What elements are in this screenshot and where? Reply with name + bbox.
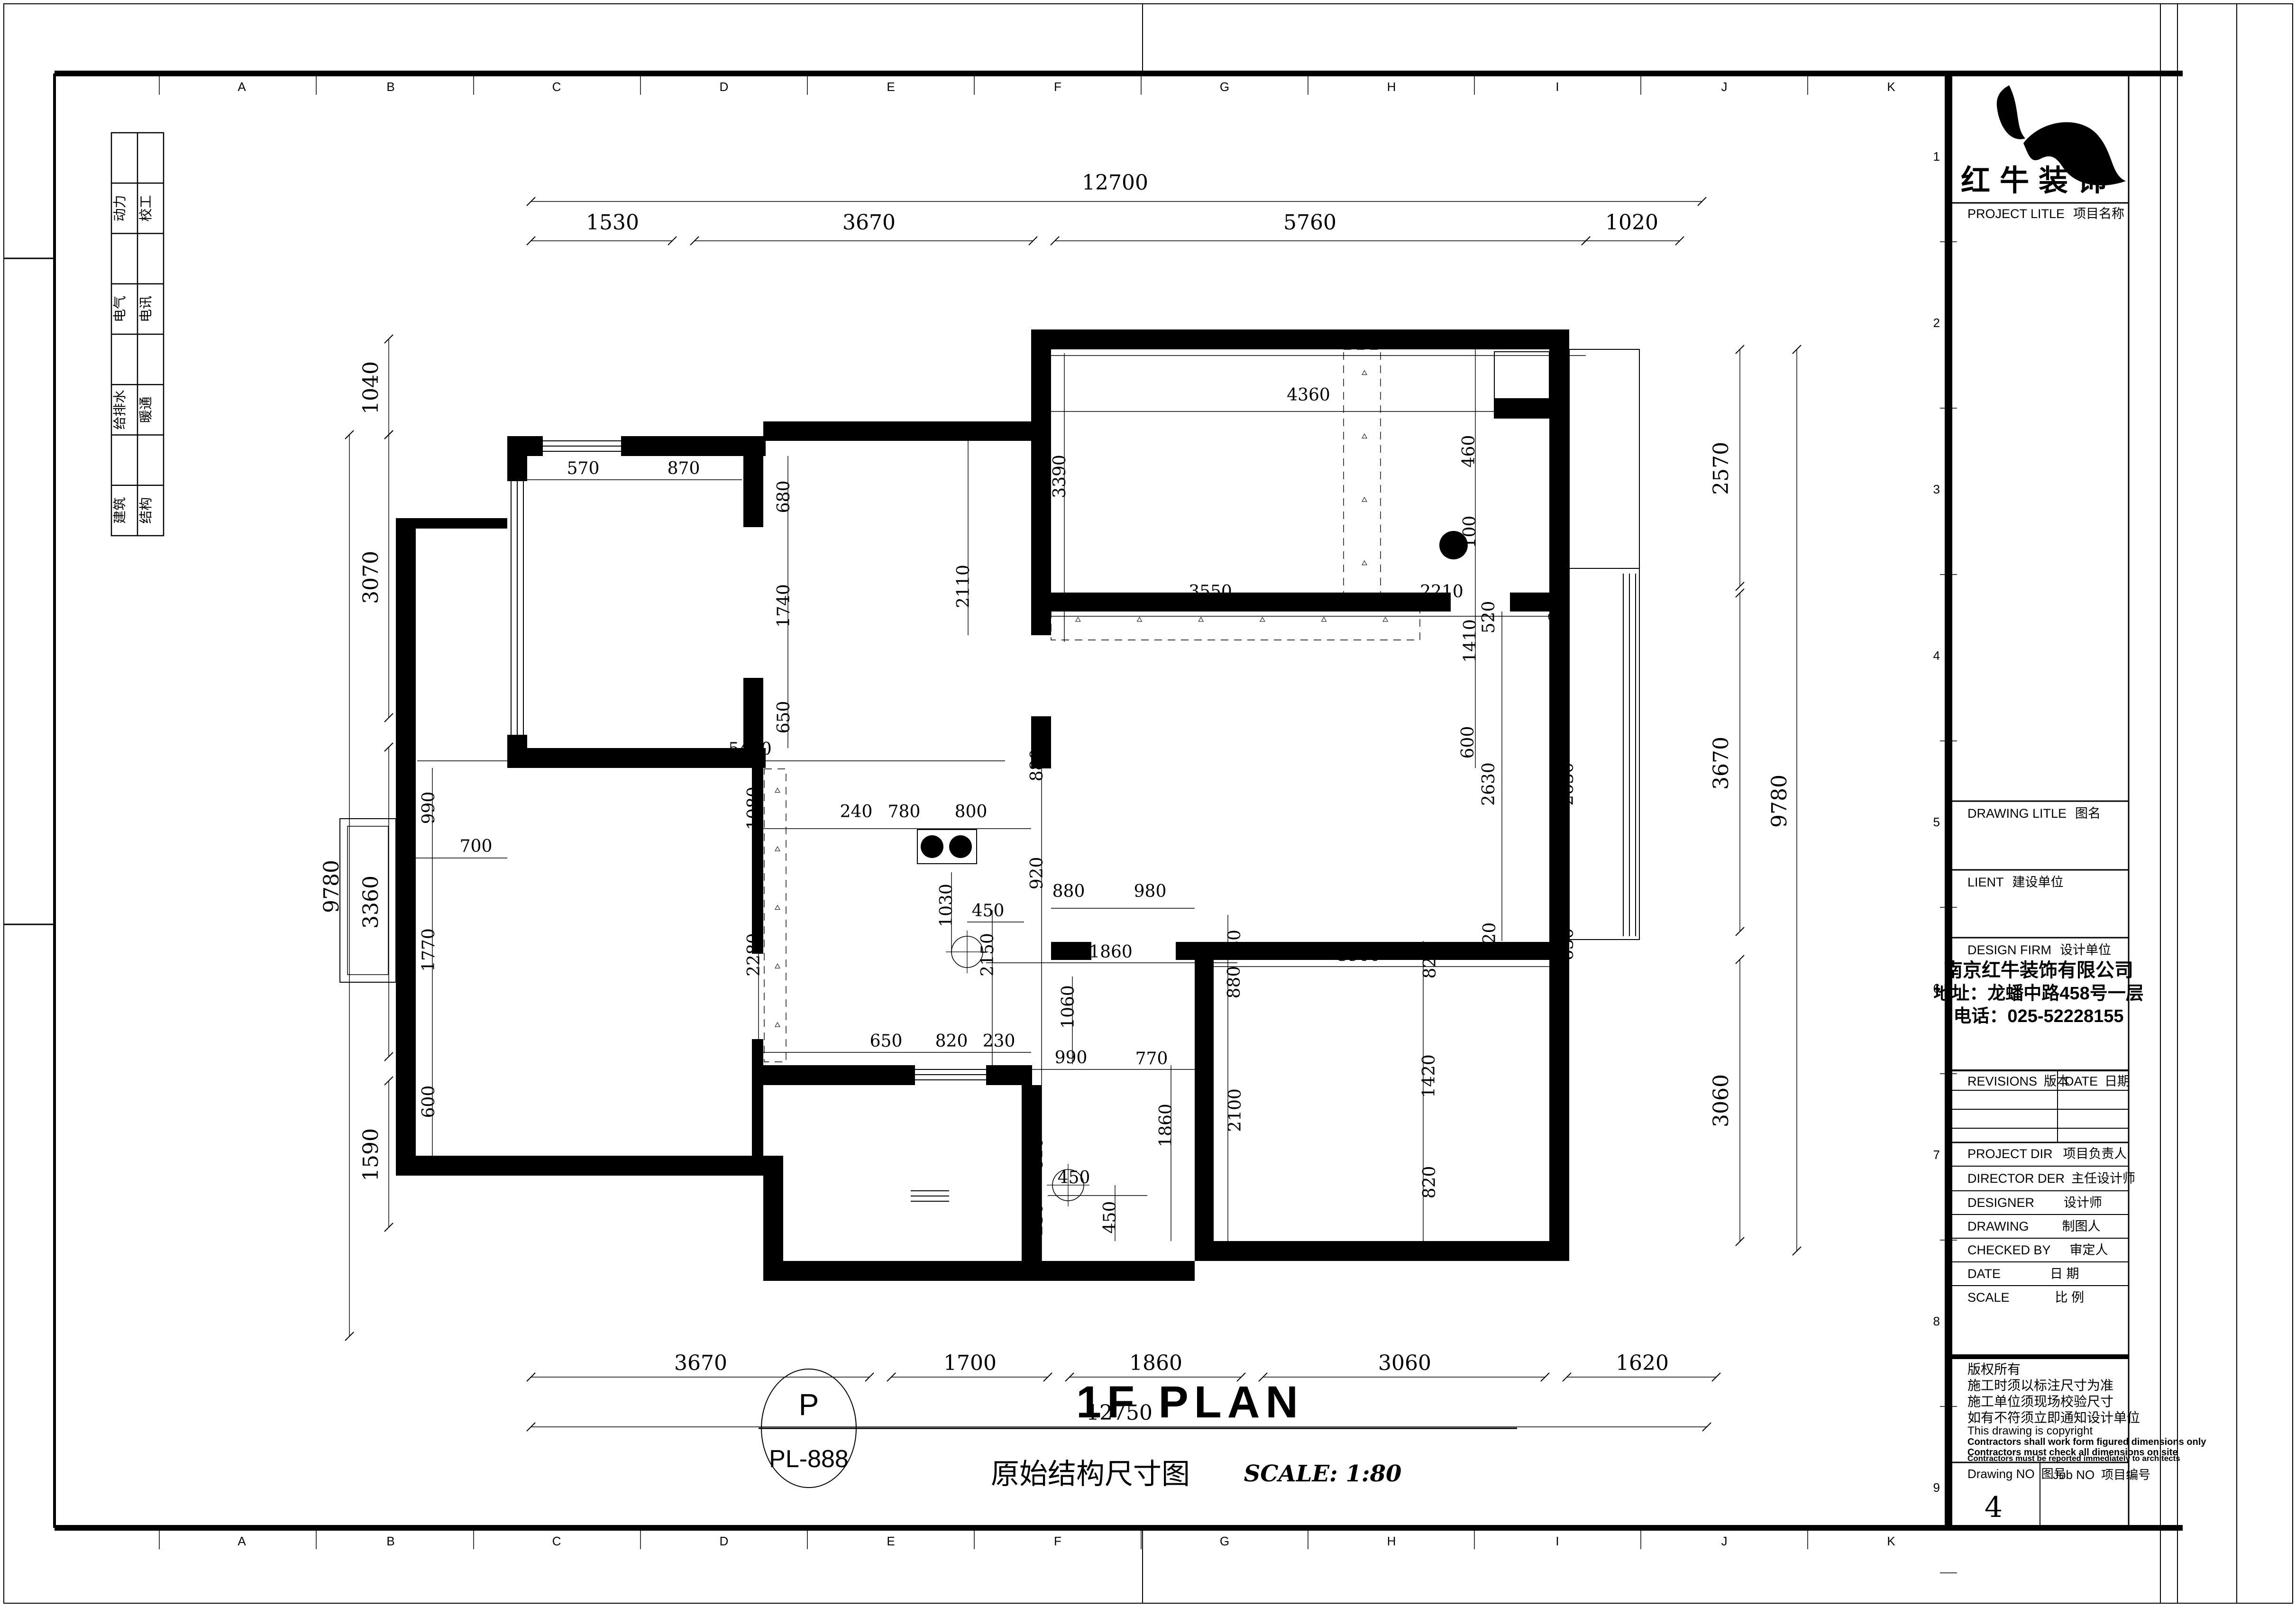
dimension-text: 2210 [1420, 582, 1464, 602]
title-block: 红牛装饰 PROJECT LITLE项目名称 DRAWING LITLE图名 L… [1933, 85, 2206, 1528]
dimension-text: 240 [840, 802, 873, 822]
copyright-notes: 版权所有 施工时须以标注尺寸为准 施工单位须现场校验尺寸 如有不符须立即通知设计… [1967, 1362, 2206, 1463]
dimension-text: 1590 [359, 1128, 383, 1181]
dimension-text: 570 [567, 459, 600, 478]
column-dot [1439, 531, 1468, 559]
grid-letter-top: B [386, 80, 394, 94]
discipline-cell: 动力 [112, 195, 127, 221]
dimension-text: 90 [1061, 332, 1083, 352]
dimension-text: 600 [419, 1086, 439, 1118]
grid-letter-top: K [1887, 80, 1895, 94]
dimension-text: 2100 [1226, 1088, 1245, 1132]
dimension-text: 1700 [943, 1351, 997, 1375]
dimension-text: 9780 [1767, 775, 1792, 828]
wall [763, 1261, 1195, 1281]
hatch-strip [764, 769, 786, 1062]
grid-letter-top: G [1220, 80, 1229, 94]
column-dot [949, 835, 972, 858]
discipline-cell: 结构 [138, 497, 153, 524]
wall [743, 678, 763, 748]
grid-letter-bottom: A [238, 1534, 246, 1548]
grid-row-number: 2 [1933, 316, 1940, 330]
discipline-cell: 给排水 [112, 390, 127, 429]
dimension-text: 810 [1027, 1138, 1047, 1170]
dimension-text: 820 [1420, 946, 1440, 979]
dimension-text: 3070 [359, 551, 383, 604]
plan-title-block: P PL-888 1F PLAN 原始结构尺寸图 SCALE: 1:80 [759, 1369, 1517, 1490]
dimension-text: 780 [888, 802, 921, 822]
dimension-text: 800 [955, 802, 988, 822]
dimension-text: 1080 [744, 786, 764, 830]
dimension-text: 950 [1092, 332, 1125, 352]
dimension-text: 450 [1058, 1168, 1090, 1187]
discipline-cell: 建筑 [112, 497, 127, 524]
section-date-label: DATE日 期 [1967, 1267, 2079, 1281]
dimension-text: 460 [1459, 435, 1479, 468]
dimension-text: 1860 [1089, 942, 1133, 962]
drawing-number: 4 [1985, 1491, 2003, 1524]
wall [763, 1065, 915, 1085]
dimension-text: 3670 [842, 210, 896, 235]
wall [1510, 593, 1549, 612]
grid-letter-bottom: H [1387, 1534, 1396, 1548]
dimension-text: 3900 [1337, 946, 1381, 965]
company-brand: 红牛装饰 [1961, 164, 2116, 197]
dimension-text: 12700 [1082, 171, 1148, 195]
dimension-text: 2630 [1558, 762, 1577, 806]
grid-row-number: 3 [1933, 482, 1940, 496]
outline [1569, 349, 1639, 568]
dimension-text: 650 [870, 1032, 903, 1051]
wall [507, 436, 527, 481]
dimension-text: 880 [1225, 966, 1244, 999]
dimension-text: 630 [1558, 928, 1577, 961]
dimension-text: 880 [1052, 882, 1085, 901]
firm-phone: 电话：025-52228155 [1953, 1006, 2123, 1026]
column-dot [921, 835, 943, 858]
discipline-cell: 电气 [112, 296, 127, 322]
dimension-text: 3670 [674, 1351, 727, 1375]
dimension-text: 1860 [1156, 1104, 1176, 1147]
discipline-cell: 电讯 [138, 296, 153, 322]
dimension-text: 680 [774, 481, 794, 513]
grid-letter-top: C [552, 80, 561, 94]
grid-letter-top: H [1387, 80, 1396, 94]
dimension-text: 3360 [359, 876, 383, 929]
section-scale-label: SCALE比 例 [1967, 1290, 2084, 1305]
grid-reference-labels: AABBCCDDEEFFGGHHIIJJKK123456789 [159, 76, 1957, 1573]
grid-letter-bottom: B [386, 1534, 394, 1548]
section-designfirm-label: DESIGN FIRM设计单位 [1967, 943, 2111, 957]
dimension-text: 360 [1498, 403, 1531, 422]
dimension-text: 9780 [320, 860, 344, 913]
section-datecol-label: DATE日期 [2065, 1074, 2130, 1088]
grid-row-number: 9 [1933, 1480, 1940, 1495]
wall [1195, 960, 1214, 1241]
dimension-text: 3670 [1709, 737, 1733, 790]
dimension-text: 3390 [1050, 455, 1070, 498]
section-director-label: DIRECTOR DER主任设计师 [1967, 1171, 2135, 1186]
grid-letter-bottom: C [552, 1534, 561, 1548]
firm-name: 南京红牛装饰有限公司 [1944, 960, 2133, 981]
wall [1051, 942, 1091, 960]
dimension-text: 2110 [954, 565, 973, 608]
jobno-label: Job NO项目编号 [2053, 1468, 2150, 1482]
grid-letter-bottom: D [720, 1534, 729, 1548]
bubble-letter: P [799, 1388, 819, 1422]
grid-letter-top: E [887, 80, 895, 94]
wall [1031, 441, 1051, 635]
section-project-label: PROJECT LITLE项目名称 [1967, 207, 2124, 221]
wall [752, 1039, 763, 1156]
grid-letter-bottom: K [1887, 1534, 1895, 1548]
dimension-text: 1030 [937, 884, 956, 927]
dimension-text: 230 [1027, 1204, 1047, 1236]
section-designer-label: DESIGNER设计师 [1967, 1196, 2102, 1210]
dimension-text: 4360 [1287, 385, 1330, 405]
svg-text:施工单位须现场校验尺寸: 施工单位须现场校验尺寸 [1967, 1394, 2113, 1409]
dimension-text: 700 [460, 837, 493, 856]
plan-scale: SCALE: 1:80 [1244, 1461, 1402, 1487]
dimension-text: 990 [1055, 1048, 1088, 1068]
discipline-cell: 校工 [138, 195, 153, 221]
grid-letter-top: D [720, 80, 729, 94]
grid-letter-bottom: F [1054, 1534, 1061, 1548]
grid-letter-bottom: G [1220, 1534, 1229, 1548]
dimension-text: 80 [1225, 930, 1244, 951]
dimension-text: 990 [419, 792, 439, 824]
dimension-text: 3550 [1189, 582, 1232, 602]
bubble-code: PL-888 [769, 1445, 849, 1473]
dimension-text: 1410 [1461, 619, 1480, 663]
dimension-text: 3060 [1378, 1351, 1431, 1375]
dimension-text: 2150 [978, 933, 997, 977]
dimension-text: 1740 [774, 584, 794, 628]
grid-letter-top: J [1721, 80, 1728, 94]
dimension-text: 1060 [1059, 985, 1078, 1029]
grid-letter-bottom: E [887, 1534, 895, 1548]
dimension-text: 1040 [359, 361, 383, 414]
dimension-text: 1620 [1616, 1351, 1669, 1375]
svg-text:Contractors must be reported i: Contractors must be reported immediately… [1967, 1454, 2180, 1463]
svg-text:如有不符须立即通知设计单位: 如有不符须立即通知设计单位 [1967, 1410, 2140, 1425]
dimension-text: 3060 [1709, 1074, 1733, 1127]
dimension-text: 880 [1027, 749, 1047, 782]
wall [743, 456, 763, 527]
dimension-text: 2570 [1709, 442, 1733, 495]
wall [1195, 1241, 1569, 1261]
dimension-text: 920 [1027, 857, 1047, 890]
dimension-text: 1860 [1129, 1351, 1182, 1375]
dimension-text: 650 [774, 701, 794, 734]
section-drawingby-label: DRAWING制图人 [1967, 1219, 2101, 1233]
svg-text:Contractors shall work form fi: Contractors shall work form figured dime… [1967, 1437, 2206, 1447]
dimension-text: 2280 [744, 933, 764, 977]
dimension-text: 230 [983, 1032, 1015, 1051]
wall [396, 1156, 763, 1176]
dimension-text: 5760 [1283, 210, 1336, 235]
dimension-text: 820 [935, 1032, 968, 1051]
wall [763, 1156, 783, 1281]
section-checked-label: CHECKED BY审定人 [1967, 1243, 2108, 1257]
grid-letter-top: I [1555, 80, 1559, 94]
dimension-text: 2630 [1479, 762, 1499, 806]
wall [1051, 593, 1451, 612]
grid-letter-bottom: I [1555, 1534, 1559, 1548]
discipline-cell: 暖通 [138, 396, 153, 423]
dimension-text: 660 [1546, 591, 1565, 623]
svg-text:This drawing is copyright: This drawing is copyright [1967, 1424, 2093, 1437]
dimension-text: 1770 [419, 928, 439, 972]
svg-text:版权所有: 版权所有 [1967, 1362, 2021, 1377]
dimension-text: 450 [972, 901, 1005, 921]
grid-row-number: 1 [1933, 149, 1940, 164]
grid-row-number: 4 [1933, 648, 1940, 663]
discipline-table: 动力校工电气电讯给排水暖通建筑结构 [111, 133, 164, 536]
dimension-text: 600 [1458, 726, 1478, 759]
firm-address: 地址：龙蟠中路458号一层 [1933, 984, 2143, 1004]
dimension-text: 5490 [728, 740, 772, 759]
drawingno-label: Drawing NO图号 [1967, 1467, 2066, 1481]
section-projectdir-label: PROJECT DIR项目负责人 [1967, 1147, 2127, 1161]
dimension-text: 820 [1420, 1166, 1439, 1199]
grid-row-number: 8 [1933, 1314, 1940, 1328]
grid-row-number: 7 [1933, 1148, 1940, 1162]
dimension-text: 1420 [1419, 1054, 1439, 1098]
wall [986, 1065, 1032, 1085]
dimension-text: 870 [668, 459, 700, 478]
section-client-label: LIENT建设单位 [1967, 875, 2064, 889]
wall [1022, 1085, 1042, 1281]
dimension-text: 980 [1134, 882, 1167, 901]
dimension-text: 1530 [586, 210, 639, 235]
section-drawing-label: DRAWING LITLE图名 [1967, 806, 2101, 821]
wall [507, 748, 766, 768]
dimension-text: 770 [1135, 1049, 1168, 1068]
dimension-text: 1020 [1605, 210, 1658, 235]
wall [621, 436, 766, 456]
dimension-text: 520 [1480, 922, 1500, 955]
section-revisions-label: REVISIONS版本 [1967, 1074, 2069, 1088]
grid-row-number: 5 [1933, 815, 1940, 829]
dimension-text: 450 [1100, 1201, 1120, 1234]
dimension-text: 520 [1479, 601, 1499, 634]
floor-plan: 1270015303670576010209095043603604601001… [320, 171, 1801, 1431]
svg-text:施工时须以标注尺寸为准: 施工时须以标注尺寸为准 [1967, 1378, 2113, 1393]
plan-title-en: 1F PLAN [1076, 1377, 1304, 1427]
outline [1569, 568, 1639, 940]
grid-letter-bottom: J [1721, 1534, 1728, 1548]
wall [763, 421, 1032, 441]
grid-letter-top: A [238, 80, 246, 94]
grid-letter-top: F [1054, 80, 1061, 94]
plan-title-cn: 原始结构尺寸图 [991, 1458, 1190, 1490]
